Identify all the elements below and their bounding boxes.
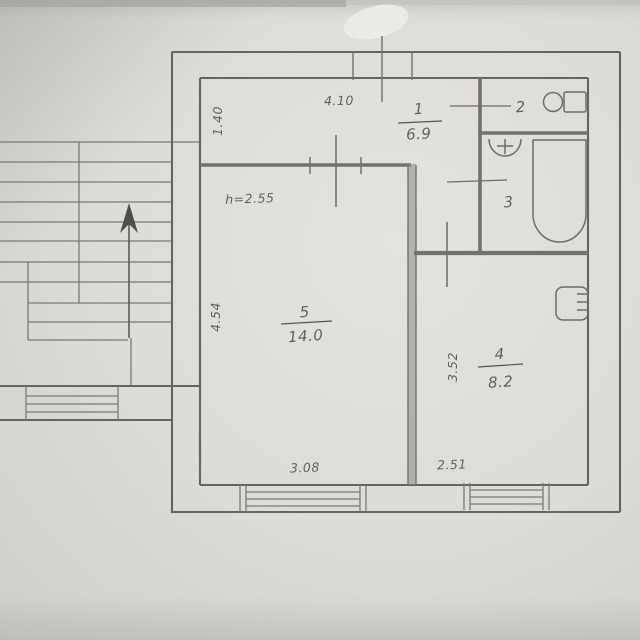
- window-symbol-room5: [240, 485, 366, 512]
- window-symbol-room4: [464, 483, 549, 510]
- dim-room5-width: 3.08: [290, 459, 320, 475]
- bottom-windows: [240, 483, 549, 512]
- room2-number: 2: [515, 98, 526, 117]
- room1-fraction-bar: [398, 121, 442, 123]
- dim-hall-width: 4.10: [324, 93, 354, 109]
- room5-fraction-bar: [281, 321, 332, 324]
- stairwell-window-symbol: [26, 386, 118, 420]
- room4-fraction-bar: [478, 364, 523, 367]
- room3-leader-line: [447, 180, 507, 182]
- stair-treads: [0, 142, 200, 322]
- radiator-fins: [577, 294, 588, 310]
- room1-area: 6.9: [406, 124, 432, 143]
- toilet-tank: [564, 92, 586, 112]
- interior-walls: [200, 78, 588, 485]
- bathtub-icon: [533, 140, 586, 242]
- room1-number: 1: [413, 100, 424, 119]
- toilet-icon: [544, 93, 563, 112]
- dim-room4-depth: 3.52: [445, 352, 460, 382]
- room3-number: 3: [503, 193, 515, 212]
- room4-number: 4: [494, 345, 505, 364]
- dim-room5-depth: 4.54: [208, 302, 223, 332]
- dim-room4-width: 2.51: [437, 456, 467, 472]
- inner-wall-line: [200, 78, 588, 485]
- radiator-icon: [556, 287, 588, 320]
- scanned-floor-plan-photo: 1 6.9 2 3 5 14.0 4 8.2 4.10 1.40 h=2.55 …: [0, 0, 640, 640]
- top-wall-ticks: [353, 36, 412, 102]
- stairwell-window-wall: [0, 386, 200, 420]
- stair-rail-and-landing: [28, 142, 131, 386]
- stairwell: [0, 142, 200, 420]
- sink-icon: [489, 139, 521, 156]
- dim-hall-depth: 1.40: [210, 106, 225, 136]
- ceiling-height-note: h=2.55: [225, 190, 275, 207]
- wall-room5-room4-fill: [408, 164, 416, 485]
- room5-number: 5: [299, 303, 310, 322]
- room5-area: 14.0: [287, 326, 324, 346]
- room4-area: 8.2: [487, 372, 514, 392]
- outer-wall-line: [172, 52, 620, 513]
- floor-plan-drawing: 1 6.9 2 3 5 14.0 4 8.2 4.10 1.40 h=2.55 …: [0, 0, 640, 640]
- exterior-walls: [172, 36, 620, 513]
